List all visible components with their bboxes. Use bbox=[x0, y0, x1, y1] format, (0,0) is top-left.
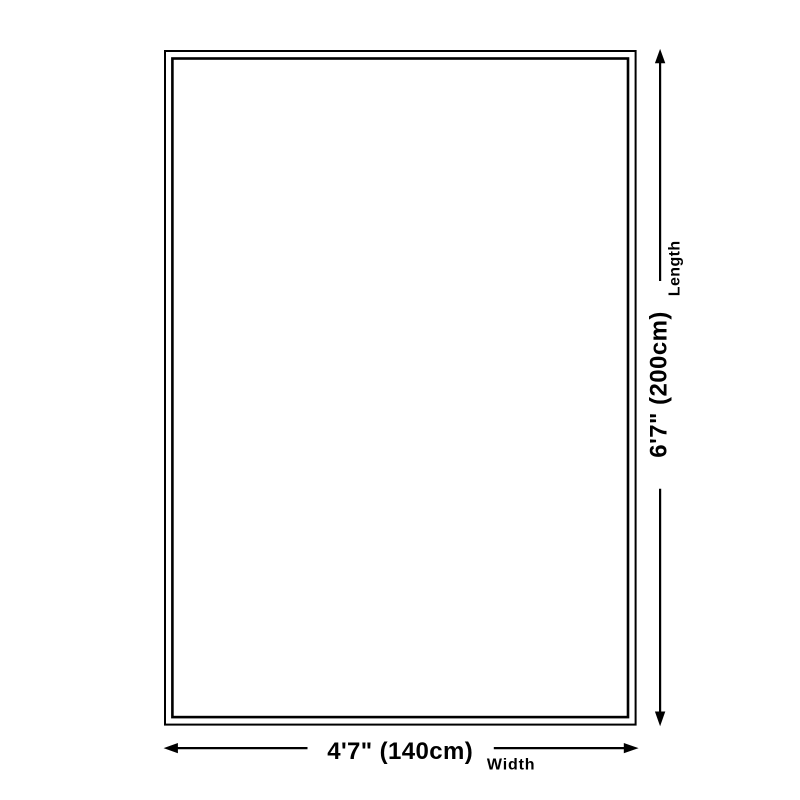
svg-text:Width: Width bbox=[487, 756, 536, 773]
svg-text:4'7" (140cm): 4'7" (140cm) bbox=[327, 738, 473, 765]
svg-text:6'7" (200cm): 6'7" (200cm) bbox=[645, 311, 672, 458]
svg-text:Length: Length bbox=[667, 240, 684, 296]
